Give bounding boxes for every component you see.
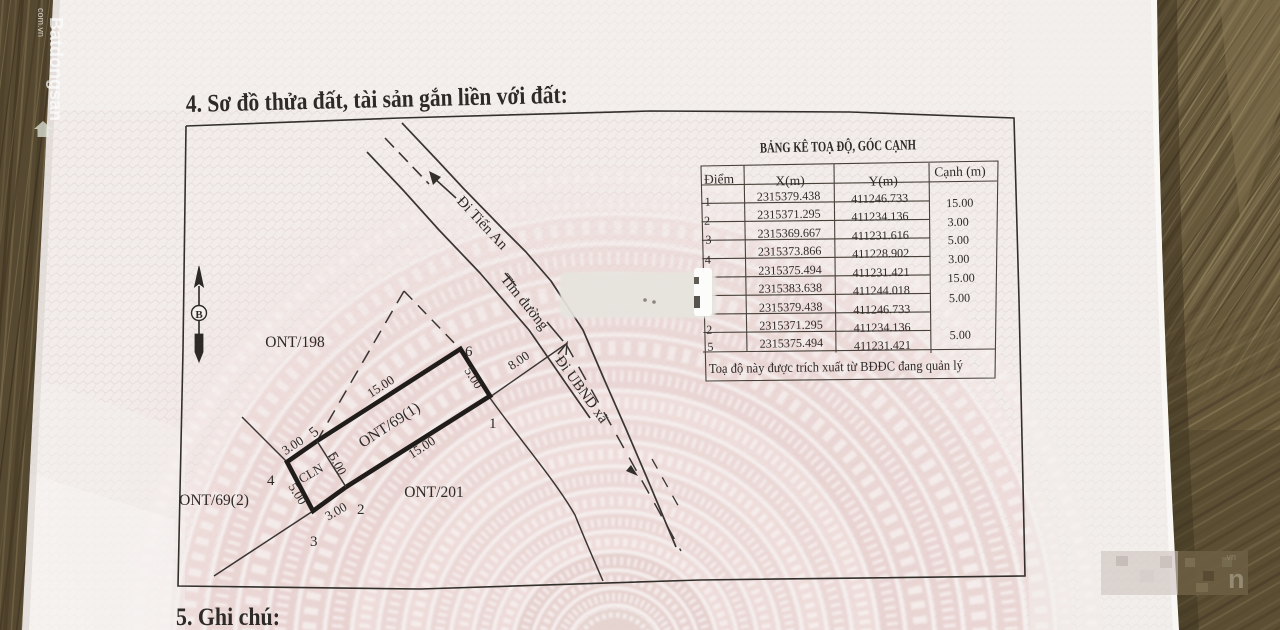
- svg-text:Cạnh (m): Cạnh (m): [934, 163, 986, 179]
- svg-text:2315375.494: 2315375.494: [758, 263, 822, 278]
- svg-text:411234.136: 411234.136: [851, 209, 908, 224]
- svg-text:411234.136: 411234.136: [853, 320, 910, 335]
- svg-text:411231.421: 411231.421: [854, 338, 911, 353]
- svg-text:.vn: .vn: [1224, 552, 1236, 562]
- svg-text:2: 2: [704, 214, 710, 228]
- svg-text:5.00: 5.00: [950, 328, 971, 342]
- svg-text:2315379.438: 2315379.438: [757, 189, 821, 204]
- svg-text:2315383.638: 2315383.638: [758, 281, 822, 296]
- svg-text:2315369.667: 2315369.667: [757, 226, 821, 241]
- svg-text:ONT/69(2): ONT/69(2): [179, 492, 249, 509]
- svg-text:15.00: 15.00: [946, 196, 973, 211]
- svg-text:ONT/198: ONT/198: [265, 334, 325, 351]
- svg-text:2: 2: [706, 323, 712, 337]
- svg-text:X(m): X(m): [775, 173, 805, 189]
- svg-text:1: 1: [705, 195, 711, 209]
- svg-text:com.vn: com.vn: [36, 8, 46, 37]
- svg-text:2315371.295: 2315371.295: [759, 318, 823, 333]
- svg-text:2315379.438: 2315379.438: [759, 300, 823, 315]
- svg-text:Điểm: Điểm: [704, 171, 735, 187]
- svg-text:3: 3: [705, 233, 711, 247]
- svg-text:1: 1: [489, 416, 497, 432]
- svg-text:ONT/201: ONT/201: [404, 484, 463, 501]
- svg-text:2315373.866: 2315373.866: [758, 244, 822, 259]
- svg-text:4: 4: [705, 253, 711, 267]
- svg-text:5. Ghi chú:: 5. Ghi chú:: [176, 604, 280, 630]
- svg-text:5.00: 5.00: [948, 233, 969, 247]
- svg-text:3: 3: [310, 534, 318, 550]
- svg-text:4: 4: [267, 473, 275, 489]
- svg-text:411228.902: 411228.902: [852, 246, 909, 261]
- svg-text:411246.733: 411246.733: [851, 191, 908, 206]
- svg-text:411231.421: 411231.421: [852, 265, 909, 280]
- svg-text:Y(m): Y(m): [868, 173, 898, 189]
- svg-text:411231.616: 411231.616: [852, 228, 909, 243]
- svg-text:15.00: 15.00: [947, 271, 974, 286]
- svg-text:n: n: [1228, 564, 1245, 594]
- svg-text:3.00: 3.00: [947, 215, 968, 229]
- svg-text:Batdongsan: Batdongsan: [46, 17, 66, 121]
- svg-text:B: B: [195, 309, 203, 321]
- svg-text:411244.018: 411244.018: [853, 283, 910, 298]
- svg-text:BẢNG KÊ TOẠ ĐỘ, GÓC CẠNH: BẢNG KÊ TOẠ ĐỘ, GÓC CẠNH: [760, 136, 917, 156]
- svg-text:2315375.494: 2315375.494: [760, 336, 824, 351]
- svg-text:5.00: 5.00: [949, 291, 970, 305]
- svg-text:2: 2: [357, 502, 365, 518]
- svg-text:6: 6: [465, 344, 473, 360]
- svg-text:411246.733: 411246.733: [853, 302, 910, 317]
- svg-text:5: 5: [707, 340, 713, 354]
- svg-text:2315371.295: 2315371.295: [757, 207, 821, 222]
- svg-text:3.00: 3.00: [948, 252, 969, 266]
